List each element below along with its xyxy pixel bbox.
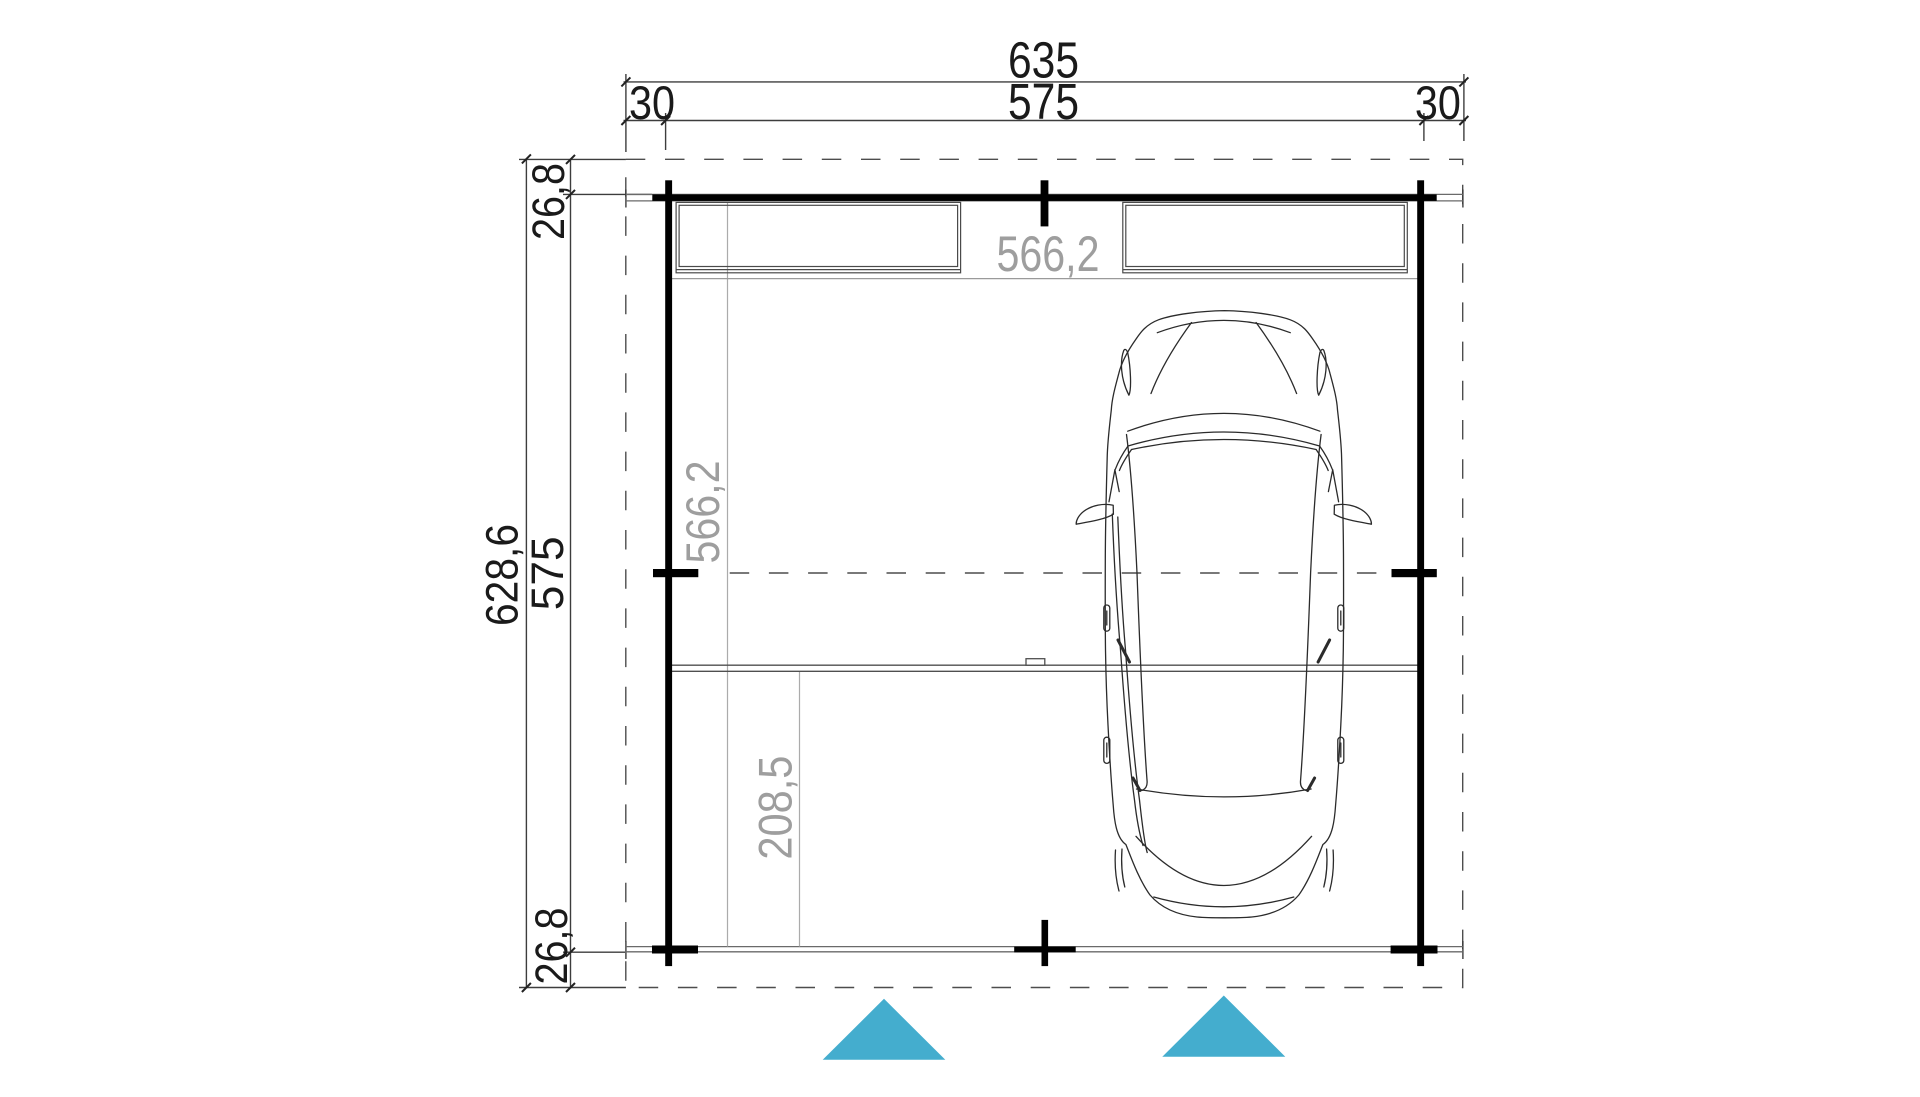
svg-text:628,6: 628,6 bbox=[476, 524, 527, 626]
svg-text:566,2: 566,2 bbox=[997, 226, 1100, 282]
svg-text:575: 575 bbox=[1008, 73, 1079, 130]
svg-text:208,5: 208,5 bbox=[749, 756, 802, 860]
svg-text:575: 575 bbox=[522, 536, 573, 610]
svg-text:26,8: 26,8 bbox=[523, 163, 574, 240]
svg-text:30: 30 bbox=[1415, 76, 1461, 129]
svg-text:30: 30 bbox=[629, 76, 675, 129]
svg-text:566,2: 566,2 bbox=[676, 461, 729, 564]
svg-text:26,8: 26,8 bbox=[526, 908, 577, 985]
